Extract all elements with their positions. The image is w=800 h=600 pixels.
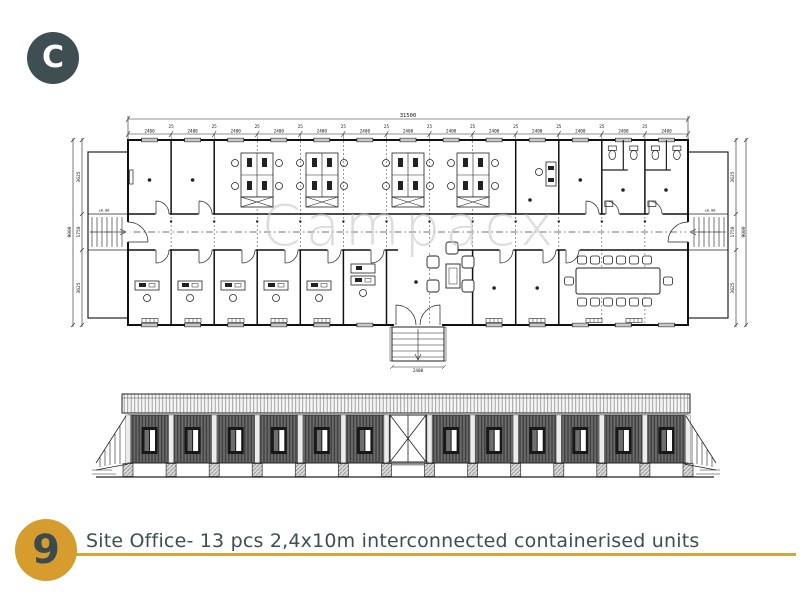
dim-label: 3625 (730, 171, 736, 182)
dim-label: 2400 (575, 129, 586, 135)
elevation-entrance-door (388, 415, 428, 465)
dim-label: 25 (599, 124, 605, 130)
slide-number: 9 (32, 530, 60, 570)
dim-label: 25 (212, 124, 218, 130)
open-plan-desk-clusters (232, 153, 499, 207)
dim-label: 3625 (76, 171, 82, 182)
level-label: ±0.00 (705, 209, 716, 213)
dim-label: 25 (513, 124, 519, 130)
bottom-office-desks (135, 264, 545, 323)
roof-band (122, 394, 690, 413)
corridor-dots (170, 220, 646, 222)
dim-label: 2400 (274, 129, 285, 135)
entrance-stairs (390, 327, 446, 369)
dim-label: 3625 (76, 282, 82, 293)
floor-plan: 31500 2400 2400 2400 2400 2400 2400 2400… (67, 113, 748, 374)
module-width-labels: 2400 2400 2400 2400 2400 2400 2400 2400 … (144, 129, 672, 135)
dim-label: 9000 (741, 226, 747, 237)
caption-title: Site Office- 13 pcs 2,4x10m interconnect… (86, 530, 700, 552)
dim-label: 2400 (532, 129, 543, 135)
dim-label: 25 (255, 124, 261, 130)
top-office-items (130, 162, 583, 202)
top-dimension-row (126, 116, 690, 140)
dim-label: 25 (384, 124, 390, 130)
dim-label: 9000 (67, 226, 73, 237)
dim-label: 2400 (187, 129, 198, 135)
front-elevation (92, 394, 720, 477)
page: C (0, 0, 800, 600)
dim-label: 25 (298, 124, 304, 130)
logo-letter: C (42, 43, 64, 73)
dim-label: 2400 (317, 129, 328, 135)
company-logo: C (27, 32, 79, 84)
slide-number-badge: 9 (15, 519, 77, 581)
dim-label: 2400 (360, 129, 371, 135)
dim-label: 2400 (489, 129, 500, 135)
dim-label: 2400 (144, 129, 155, 135)
dim-label: 2400 (231, 129, 242, 135)
dim-label: 1750 (730, 226, 736, 237)
dim-label: 2400 (403, 129, 414, 135)
caption-underline (56, 553, 796, 556)
left-entry-deck (88, 152, 128, 318)
caption-bar: 9 Site Office- 13 pcs 2,4x10m interconne… (0, 510, 800, 600)
right-entry-deck (688, 152, 728, 318)
left-stair-railing (92, 416, 128, 474)
dim-label: 25 (642, 124, 648, 130)
dim-label: 2400 (618, 129, 629, 135)
wc-units (602, 140, 681, 207)
level-label: ±0.00 (99, 209, 110, 213)
dim-label: 1750 (76, 226, 82, 237)
technical-drawing: 31500 2400 2400 2400 2400 2400 2400 2400… (0, 0, 800, 510)
dim-label: 25 (470, 124, 476, 130)
dim-label: 25 (169, 124, 175, 130)
meeting-room (565, 256, 673, 323)
dim-label-total-width: 31500 (400, 113, 417, 119)
dim-label: 3625 (730, 282, 736, 293)
dim-label: 2400 (661, 129, 672, 135)
elevation-footings (123, 464, 693, 477)
dim-label: 2400 (446, 129, 457, 135)
dim-label-entrance: 2400 (413, 368, 424, 374)
dim-label: 25 (341, 124, 347, 130)
dim-label: 25 (556, 124, 562, 130)
dim-label: 25 (427, 124, 433, 130)
